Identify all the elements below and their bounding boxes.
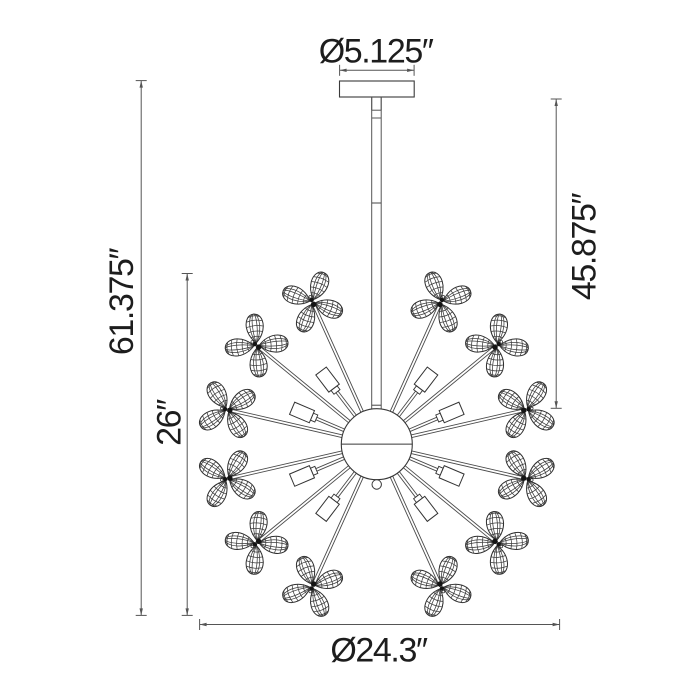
svg-text:61.375″: 61.375″	[103, 248, 141, 356]
svg-text:Ø24.3″: Ø24.3″	[330, 632, 428, 670]
svg-text:45.875″: 45.875″	[566, 193, 604, 301]
svg-text:Ø5.125″: Ø5.125″	[319, 32, 434, 70]
svg-text:26″: 26″	[151, 399, 189, 446]
